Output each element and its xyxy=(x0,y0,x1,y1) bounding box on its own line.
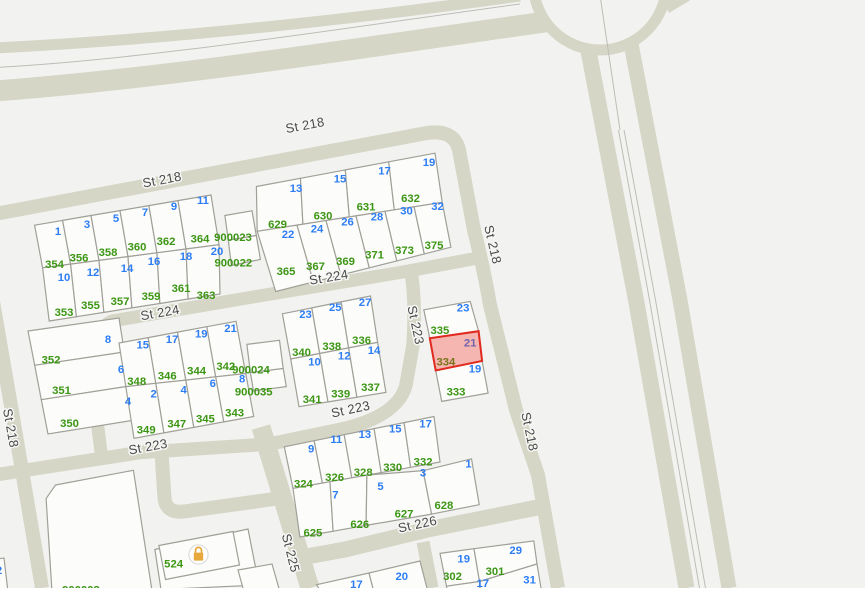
svg-text:358: 358 xyxy=(99,247,118,259)
svg-text:30: 30 xyxy=(400,206,413,218)
svg-text:625: 625 xyxy=(303,528,322,540)
svg-text:346: 346 xyxy=(158,371,177,383)
svg-text:349: 349 xyxy=(137,424,156,436)
svg-text:900024: 900024 xyxy=(232,365,270,377)
svg-text:330: 330 xyxy=(383,462,402,474)
svg-text:900023: 900023 xyxy=(214,232,252,244)
svg-text:29: 29 xyxy=(509,545,522,557)
svg-text:8: 8 xyxy=(239,373,245,385)
svg-text:359: 359 xyxy=(142,291,161,303)
svg-text:337: 337 xyxy=(361,382,380,394)
svg-text:630: 630 xyxy=(314,211,333,223)
svg-text:14: 14 xyxy=(368,345,381,357)
svg-text:356: 356 xyxy=(70,253,89,265)
svg-text:18: 18 xyxy=(180,251,193,263)
svg-text:8: 8 xyxy=(105,334,111,346)
svg-text:4: 4 xyxy=(180,384,187,396)
svg-text:15: 15 xyxy=(389,424,402,436)
svg-text:32: 32 xyxy=(431,201,444,213)
svg-text:6: 6 xyxy=(210,378,216,390)
svg-text:13: 13 xyxy=(359,429,372,441)
svg-text:15: 15 xyxy=(334,174,347,186)
svg-text:345: 345 xyxy=(196,414,215,426)
svg-text:19: 19 xyxy=(469,364,482,376)
svg-text:31: 31 xyxy=(523,575,536,587)
svg-text:5: 5 xyxy=(113,213,119,225)
svg-text:14: 14 xyxy=(121,263,134,275)
svg-text:4: 4 xyxy=(125,396,132,408)
svg-text:360: 360 xyxy=(128,242,147,254)
svg-text:9: 9 xyxy=(171,201,177,213)
svg-text:344: 344 xyxy=(187,365,207,377)
svg-text:27: 27 xyxy=(359,297,372,309)
svg-text:301: 301 xyxy=(486,566,505,578)
svg-text:1: 1 xyxy=(55,226,61,238)
svg-text:352: 352 xyxy=(42,355,61,367)
svg-text:524: 524 xyxy=(164,559,184,571)
svg-text:20: 20 xyxy=(396,571,409,583)
svg-text:17: 17 xyxy=(477,578,490,588)
svg-text:23: 23 xyxy=(299,309,312,321)
svg-text:326: 326 xyxy=(325,472,344,484)
svg-text:373: 373 xyxy=(395,245,414,257)
svg-text:11: 11 xyxy=(330,434,342,446)
svg-text:28: 28 xyxy=(371,212,384,224)
svg-text:15: 15 xyxy=(137,339,150,351)
svg-text:19: 19 xyxy=(423,157,436,169)
svg-text:302: 302 xyxy=(443,571,462,583)
svg-text:21: 21 xyxy=(224,323,237,335)
svg-text:17: 17 xyxy=(166,334,179,346)
svg-text:2: 2 xyxy=(0,565,2,577)
svg-text:7: 7 xyxy=(142,207,148,219)
svg-text:628: 628 xyxy=(434,500,453,512)
svg-text:22: 22 xyxy=(282,229,295,241)
svg-text:7: 7 xyxy=(332,490,338,502)
svg-text:3: 3 xyxy=(84,219,90,231)
svg-text:371: 371 xyxy=(365,250,384,262)
svg-text:341: 341 xyxy=(303,394,322,406)
svg-text:2: 2 xyxy=(151,388,157,400)
svg-text:13: 13 xyxy=(290,183,303,195)
svg-text:12: 12 xyxy=(87,267,100,279)
svg-text:361: 361 xyxy=(172,283,191,295)
svg-text:20: 20 xyxy=(211,246,224,258)
svg-text:19: 19 xyxy=(195,329,208,341)
svg-text:626: 626 xyxy=(350,519,369,531)
svg-text:23: 23 xyxy=(457,302,470,314)
svg-text:900003: 900003 xyxy=(62,585,100,589)
svg-text:3: 3 xyxy=(420,467,426,479)
svg-text:348: 348 xyxy=(127,376,146,388)
svg-text:364: 364 xyxy=(191,234,211,246)
svg-text:354: 354 xyxy=(45,259,65,271)
svg-text:900035: 900035 xyxy=(235,386,273,398)
svg-text:19: 19 xyxy=(457,554,470,566)
svg-text:365: 365 xyxy=(277,266,296,278)
svg-text:353: 353 xyxy=(55,307,74,319)
svg-text:26: 26 xyxy=(341,217,354,229)
svg-text:363: 363 xyxy=(197,290,216,302)
svg-text:900022: 900022 xyxy=(214,257,252,269)
svg-text:357: 357 xyxy=(111,296,130,308)
svg-text:333: 333 xyxy=(447,386,466,398)
svg-text:17: 17 xyxy=(419,418,432,430)
svg-text:10: 10 xyxy=(58,272,71,284)
svg-text:324: 324 xyxy=(294,478,314,490)
svg-text:16: 16 xyxy=(148,256,161,268)
svg-text:347: 347 xyxy=(167,418,186,430)
svg-text:10: 10 xyxy=(308,357,321,369)
svg-text:24: 24 xyxy=(311,224,324,236)
svg-text:632: 632 xyxy=(401,193,420,205)
svg-text:343: 343 xyxy=(225,407,244,419)
svg-text:350: 350 xyxy=(60,418,79,430)
svg-text:9: 9 xyxy=(308,444,314,456)
svg-text:339: 339 xyxy=(331,389,350,401)
svg-text:355: 355 xyxy=(81,300,100,312)
svg-text:351: 351 xyxy=(52,385,71,397)
svg-text:375: 375 xyxy=(425,240,444,252)
svg-text:12: 12 xyxy=(338,351,351,363)
svg-text:328: 328 xyxy=(354,467,373,479)
svg-text:17: 17 xyxy=(350,579,363,588)
svg-text:11: 11 xyxy=(197,195,209,207)
svg-text:362: 362 xyxy=(157,236,176,248)
svg-text:25: 25 xyxy=(329,302,342,314)
svg-text:6: 6 xyxy=(118,364,124,376)
svg-text:5: 5 xyxy=(377,481,383,493)
svg-text:17: 17 xyxy=(378,166,391,178)
svg-text:1: 1 xyxy=(465,459,471,471)
